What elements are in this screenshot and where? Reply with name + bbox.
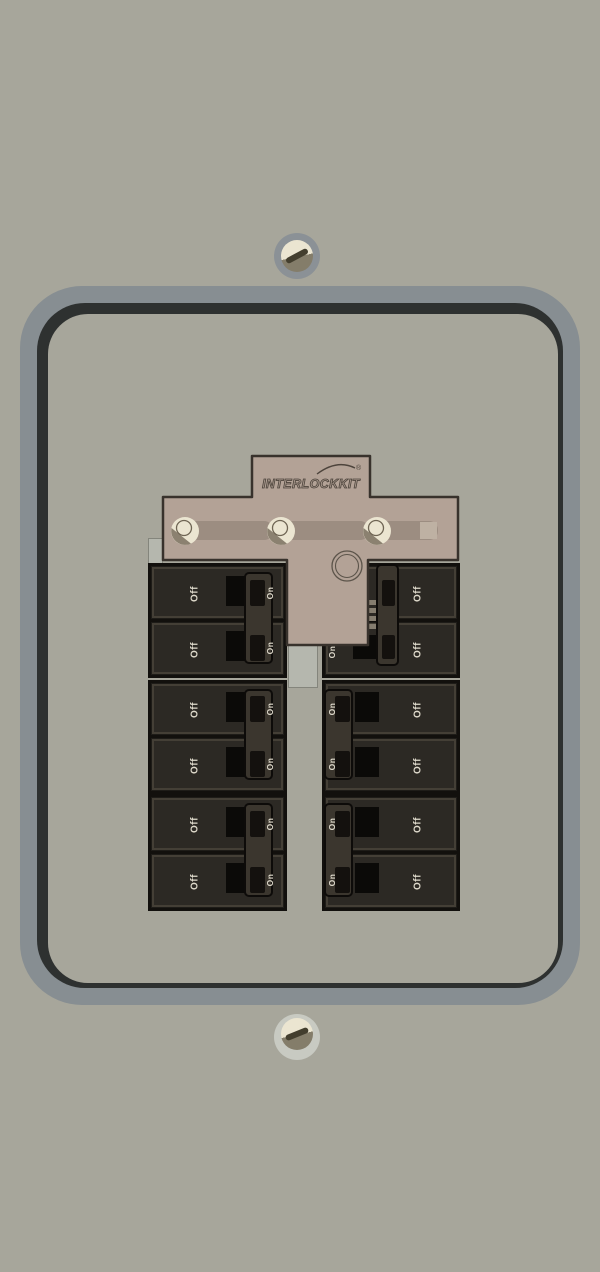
breaker-on-label: On	[265, 703, 275, 716]
handle-grip	[250, 751, 265, 777]
breaker-handle[interactable]: OnOn	[324, 803, 353, 897]
breaker-handle[interactable]: OnOn	[244, 803, 273, 897]
handle-grip	[335, 811, 350, 837]
registered-mark: ®	[356, 464, 362, 472]
breaker-off-label: Off	[190, 817, 201, 833]
interlock-screw-2[interactable]	[267, 517, 295, 545]
breaker-on-label: On	[327, 874, 337, 887]
handle-notch	[355, 863, 379, 893]
interlock-brand-text: INTERLOCKKIT	[262, 477, 361, 491]
breaker-off-label: Off	[413, 758, 424, 774]
handle-grip	[250, 811, 265, 837]
breaker-handle[interactable]: OnOn	[324, 689, 353, 780]
breaker-off-label: Off	[413, 874, 424, 890]
handle-notch	[355, 747, 379, 777]
breaker-off-label: Off	[413, 702, 424, 718]
interlock-plate: INTERLOCKKIT ®	[140, 450, 470, 700]
breaker-off-label: Off	[190, 874, 201, 890]
breaker-on-label: On	[265, 758, 275, 771]
breaker-off-label: Off	[190, 758, 201, 774]
breaker-pair-left-3: OffOffOnOn	[148, 794, 287, 906]
breaker-on-label: On	[327, 818, 337, 831]
handle-grip	[250, 867, 265, 893]
handle-grip	[335, 867, 350, 893]
breaker-on-label: On	[265, 874, 275, 887]
breaker-off-label: Off	[413, 817, 424, 833]
panel-illustration: OffOffOnOnOffOffOnOnOffOffOnOnOffOffOnOf…	[0, 0, 600, 1272]
interlock-slot-cap	[420, 522, 437, 539]
breaker-on-label: On	[327, 758, 337, 771]
interlock-screw-1[interactable]	[171, 517, 199, 545]
breaker-on-label: On	[327, 703, 337, 716]
breaker-handle[interactable]: OnOn	[244, 689, 273, 780]
interlock-screw-3[interactable]	[363, 517, 391, 545]
handle-grip	[335, 751, 350, 777]
breaker-off-label: Off	[190, 702, 201, 718]
handle-notch	[355, 807, 379, 837]
breaker-on-label: On	[265, 818, 275, 831]
breaker-pair-right-3: OffOffOnOn	[322, 794, 460, 906]
